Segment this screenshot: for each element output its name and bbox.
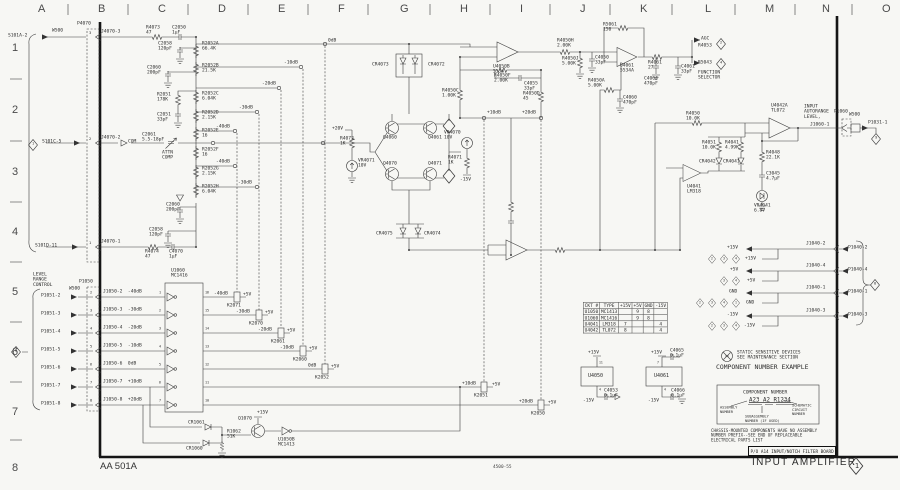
k2050-5v: +5V (548, 400, 556, 405)
grid-col-B: B (98, 3, 105, 15)
p1051-3: P1051-3 (41, 311, 60, 316)
minus15v-bridge: -15V (460, 177, 471, 182)
p1040-1: P1040-1 (848, 289, 867, 294)
pwr-d3b: 3 (723, 279, 725, 283)
grid-col-J: J (580, 3, 586, 15)
attn-comp: ATTN COMP (162, 150, 173, 160)
grid-col-G: G (400, 3, 409, 15)
p1051-4: P1051-4 (41, 329, 60, 334)
j1050-pin7: 7 (90, 381, 92, 385)
r5061: R5061 150 (603, 22, 617, 32)
r4050f: R4050F 2.00K (494, 73, 511, 83)
power-table-cell: 4 (654, 327, 668, 333)
minus15v-rail2: -15V (744, 323, 755, 328)
k2060: K2060 (293, 357, 307, 362)
k2050-db: +20dB (519, 399, 533, 404)
input-autorange-level: INPUT AUTORANGE LEVEL, (804, 104, 829, 119)
u4061: U4061 5534A (620, 63, 634, 73)
sheet-title: INPUT AMPLIFIER (752, 457, 856, 468)
u4050-pwr-pin11: 11 (599, 361, 603, 365)
c4066: C4066 0.1μF (671, 388, 685, 398)
j4070-pin3: 3 (89, 31, 91, 35)
k2051-db: +10dB (462, 381, 476, 386)
power-table-cell: 8 (619, 327, 633, 333)
pwr-d2a: 2 (711, 257, 713, 261)
plus20v: +20V (332, 126, 343, 131)
r4050a: R4050A 5.00K (588, 78, 605, 88)
q4061: Q4061 (428, 135, 442, 140)
j1050-pin4: 4 (90, 327, 92, 331)
u1050b: U1050B MC1413 (278, 437, 295, 447)
j1040-4: J1040-4 (806, 263, 825, 268)
p1051-7: P1051-7 (41, 383, 60, 388)
drawing-number: 4500-55 (493, 464, 512, 469)
r2051: R2051 178K (157, 92, 171, 102)
r2052d: R2052D 2.15K (202, 110, 219, 120)
vr4041: VR4041 6.8V (754, 203, 771, 213)
r2052h: R2052H 6.04K (202, 184, 219, 194)
k2070-5v: +5V (265, 310, 273, 315)
p1031-1: P1031-1 (868, 120, 887, 125)
level-range-control: LEVEL RANGE CONTROL (33, 272, 52, 287)
tap-minus10db: -10dB (284, 60, 298, 65)
j1050-5: J1050-5 -10dB (103, 343, 142, 348)
power-table-cell: U4041 (583, 321, 599, 327)
j1050-7: J1050-7 +10dB (103, 379, 142, 384)
grid-row-1: 1 (12, 42, 18, 54)
r2052a: R2052A 66.4K (202, 41, 219, 51)
pwr-d2d: 2 (711, 324, 713, 328)
grid-col-A: A (38, 3, 45, 15)
r4041: R4041 4.99K (725, 140, 739, 150)
grid-col-E: E (278, 3, 285, 15)
plus15v-rail2: +15V (745, 256, 756, 261)
tap-minus20db: -20dB (262, 81, 276, 86)
r4050j: R4050J 5.00K (562, 56, 579, 66)
j1050-2: J1050-2 -40dB (103, 289, 142, 294)
u4061-pwr-pin4: 4 (664, 388, 666, 392)
c2058: C2058 120pF (158, 41, 172, 51)
c4070: C4070 1μF (169, 249, 183, 259)
static-sensitive-icon (722, 351, 733, 362)
w500-level: W500 (69, 286, 80, 291)
grid-col-M: M (765, 3, 774, 15)
grid-row-5: 5 (12, 286, 18, 298)
k2071-5v: +5V (243, 292, 251, 297)
u1060-in4: 4 (159, 345, 161, 349)
c4065: C4065 0.1μF (670, 348, 684, 358)
power-table-cell: LM318 (600, 321, 619, 327)
r4074: R4074 47 (145, 249, 159, 259)
u4061-pwr-pin7: 7 (657, 361, 659, 365)
grid-col-F: F (338, 3, 345, 15)
j4070-2: J4070-2 (101, 135, 120, 140)
j1050-3: J1050-3 -30dB (103, 307, 142, 312)
c4053: C4053 0.1μF (604, 388, 618, 398)
k2061-5v: +5V (287, 328, 295, 333)
board-label-box: P/O A14 INPUT/NOTCH FILTER BOARD (748, 446, 836, 456)
u4041: U4041 LM318 (687, 184, 701, 194)
component-number-sample: A23 A2 R1234 (749, 397, 791, 403)
ref-diamond-9: 9 (875, 136, 877, 140)
r2052g: R2052G 2.15K (202, 166, 219, 176)
k2052: K2052 (315, 375, 329, 380)
p1051-5: P1051-5 (41, 347, 60, 352)
u1060-out14: 14 (205, 327, 209, 331)
u1060-out12: 12 (205, 363, 209, 367)
s101d-11: S101D-11 (35, 243, 57, 248)
j1050-6: J1050-6 0dB (103, 361, 136, 366)
c2058-b: C2058 120pF (149, 227, 163, 237)
junction-dots (195, 36, 799, 436)
p1040-2: P1040-2 (848, 245, 867, 250)
power-table-cell: U1050 (583, 308, 599, 314)
ref-diamond-8: 8 (874, 282, 876, 286)
c4060: C4060 470pF (623, 95, 637, 105)
u1060-out13: 13 (205, 345, 209, 349)
c4050: C4050 33pF (595, 55, 609, 65)
u1060-in1: 1 (159, 291, 161, 295)
grid-col-O: O (882, 3, 891, 15)
p4070: P4070 (77, 21, 91, 26)
k2071-db: -40dB (214, 291, 228, 296)
k2061: K2061 (271, 339, 285, 344)
power-table-cell (632, 327, 643, 333)
q4070: Q4070 (383, 161, 397, 166)
power-table-header: +15V (619, 302, 633, 308)
r4050d: R4050D 45 (523, 91, 540, 101)
j4070-1: J4070-1 (101, 239, 120, 244)
grid-row-3: 3 (12, 166, 18, 178)
k2060-db: -10dB (280, 345, 294, 350)
power-table-cell: MC1416 (600, 315, 619, 321)
cr4075: CR4075 (376, 231, 393, 236)
j4070-pin2: 2 (89, 137, 91, 141)
r4050: R4050 10.0K (686, 111, 700, 121)
tap-0db: 0dB (328, 38, 336, 43)
r4048: R4048 22.1K (766, 150, 780, 160)
pwr-d4a: 4 (735, 257, 737, 261)
pwr-d4c: 4 (723, 301, 725, 305)
j1050-4: J1050-4 -20dB (103, 325, 142, 330)
j1050-pin8: 8 (90, 399, 92, 403)
u4050-pwr-m15v: -15V (583, 398, 594, 403)
u1060-in7: 7 (159, 399, 161, 403)
gnd-rail2: GND (746, 300, 754, 305)
plus10db-node: +10dB (487, 110, 501, 115)
power-table-cell: U4042 (583, 327, 599, 333)
assembly-number: ASSEMBLY NUMBER (720, 406, 737, 414)
u4050-pwr: U4050 (588, 373, 603, 379)
tap-minus30db-b: -30dB (238, 180, 252, 185)
r2052e: R2052E 16 (202, 128, 219, 138)
j1040-1: J1040-1 (806, 285, 825, 290)
j1050-pin5: 5 (90, 345, 92, 349)
grid-col-N: N (822, 3, 830, 15)
pwr-d3d: 3 (723, 324, 725, 328)
pwr-d3c: 3 (711, 301, 713, 305)
power-table-cell: TL072 (600, 327, 619, 333)
minus15v-rail: -15V (727, 312, 738, 317)
c4061: C4061 33pF (681, 64, 695, 74)
p1060: P1060 (834, 109, 848, 114)
plus20db-node: +20dB (522, 110, 536, 115)
power-table-header: CKT # (583, 302, 599, 308)
p1051-2: P1051-2 (41, 293, 60, 298)
cr4074: CR4074 (424, 231, 441, 236)
u1060-out10: 10 (205, 399, 209, 403)
r4072: R4072 1K (340, 136, 354, 146)
k2061-db: -20dB (258, 327, 272, 332)
board-label: P/O A14 INPUT/NOTCH FILTER BOARD (750, 449, 833, 454)
plus15v-rail: +15V (727, 245, 738, 250)
cr4073: CR4073 (372, 62, 389, 67)
power-table-header: +5V (632, 302, 643, 308)
pwr-d3a: 3 (723, 257, 725, 261)
k2060-5v: +5V (309, 346, 317, 351)
plus15v-q1070: +15V (257, 410, 268, 415)
power-table-header: -15V (654, 302, 668, 308)
cr1060: CR1060 (186, 446, 203, 451)
p1040-4: P1040-4 (848, 267, 867, 272)
u1060-out16: 16 (205, 291, 209, 295)
product-title: AA 501A (100, 461, 137, 472)
chassis-note: CHASSIS-MOUNTED COMPONENTS HAVE NO ASSEM… (711, 429, 817, 443)
schematic-sheet: ABCDEFGHIJKLMNO12345678 S101A-2W500P4070… (0, 0, 900, 490)
r2052c: R2052C 6.04K (202, 91, 219, 101)
q4071: Q4071 (428, 161, 442, 166)
schematic-circuit-number: SCHEMATIC CIRCUIT NUMBER (792, 404, 812, 416)
p1051-6: P1051-6 (41, 365, 60, 370)
r4073: R4073 47 (146, 25, 160, 35)
pwr-d1c: 1 (735, 301, 737, 305)
r5043: R5043 (698, 60, 712, 65)
tap-minus40db-b: -40dB (216, 159, 230, 164)
com: COM (128, 139, 136, 144)
plus5v-rail2: +5V (747, 278, 755, 283)
r4051: R4051 10.0K (702, 140, 716, 150)
k2051-5v: +5V (492, 382, 500, 387)
p1050: P1050 (79, 279, 93, 284)
grid-row-8: 8 (12, 462, 18, 474)
r1062: R1062 51K (227, 429, 241, 439)
function-selector: FUNCTION SELECTOR (698, 70, 720, 80)
s101c-5: S101C-5 (42, 139, 61, 144)
u4050-pwr-pin4: 4 (599, 388, 601, 392)
vr4071: VR4071 10V (358, 158, 375, 168)
cr1061: CR1061 (188, 420, 205, 425)
grid-col-C: C (158, 3, 166, 15)
r2052f: R2052F 16 (202, 147, 219, 157)
r4050c: R4050C 1.00K (442, 88, 459, 98)
grid-col-L: L (705, 3, 711, 15)
grid-ticks (10, 4, 852, 440)
p1040-3: P1040-3 (848, 312, 867, 317)
grid-col-D: D (218, 3, 226, 15)
s101a-2: S101A-2 (8, 33, 27, 38)
static-note: STATIC SENSITIVE DEVICES SEE MAINTENANCE… (737, 350, 801, 360)
u4042a: U4042A TL072 (771, 103, 788, 113)
u1060-in2: 2 (159, 309, 161, 313)
component-number-heading: COMPONENT NUMBER (743, 390, 787, 395)
j1050-pin3: 3 (90, 309, 92, 313)
u4061-pwr-15v: +15V (651, 350, 662, 355)
grid-row-7: 7 (12, 406, 18, 418)
j4070-pin1: 1 (89, 241, 91, 245)
k2051: K2051 (474, 393, 488, 398)
tap-minus30db: -30dB (239, 105, 253, 110)
r2052b: R2052B 21.5K (202, 63, 219, 73)
q4060: Q4060 (383, 135, 397, 140)
j1040-2: J1040-2 (806, 241, 825, 246)
u1060-out11: 11 (205, 381, 209, 385)
u4050-pwr-15v: +15V (588, 350, 599, 355)
ref-diamond-1: 1 (32, 142, 34, 146)
tap-minus40db: -40dB (216, 124, 230, 129)
grid-col-I: I (520, 3, 523, 15)
power-table-cell (643, 327, 654, 333)
c2051: C2051 33pF (157, 112, 171, 122)
r4053: R4053 (698, 43, 712, 48)
gnd-rail: GND (729, 289, 737, 294)
j1060-1: J1060-1 (810, 122, 829, 127)
j1050-8: J1050-8 +20dB (103, 397, 142, 402)
grid-col-K: K (640, 3, 647, 15)
pwr-d4d: 4 (735, 324, 737, 328)
u1060-out15: 15 (205, 309, 209, 313)
r4061: R4061 27 (648, 60, 662, 70)
cr4072: CR4072 (428, 62, 445, 67)
pwr-d2c: 2 (699, 301, 701, 305)
j4070-3: J4070-3 (101, 29, 120, 34)
w500-out: W500 (849, 112, 860, 117)
p1051-8: P1051-8 (41, 401, 60, 406)
u1060-in6: 6 (159, 381, 161, 385)
ic-power-table: CKT #TYPE+15V+5VGND-15VU1050MC141398U106… (583, 302, 683, 340)
c3045: C3045 4.7μF (766, 171, 780, 181)
component-number-example-title: COMPONENT NUMBER EXAMPLE (716, 364, 808, 371)
j1050-pin2: 2 (90, 291, 92, 295)
j1040-3: J1040-3 (806, 308, 825, 313)
power-table-row: U4042TL07284 (583, 327, 667, 333)
k2070: K2070 (249, 321, 263, 326)
k2071: K2071 (227, 303, 241, 308)
c2060-b: C2060 200pF (166, 202, 180, 212)
subassembly-number: SUBASSEMBLY NUMBER (IF USED) (745, 415, 780, 423)
u1060-in5: 5 (159, 363, 161, 367)
grid-col-H: H (460, 3, 468, 15)
u4061-pwr: U4061 (654, 373, 669, 379)
c4064: C4064 470pF (644, 76, 658, 86)
r4050h: R4050H 2.00K (557, 38, 574, 48)
u4061-pwr-m15v: -15V (648, 398, 659, 403)
sheet-number: 1 (853, 462, 861, 470)
c2060: C2060 200pF (147, 65, 161, 75)
plus5v-rail: +5V (730, 267, 738, 272)
r4071: R4071 1K (448, 155, 462, 165)
grid-row-4: 4 (12, 226, 18, 238)
u1060-in3: 3 (159, 327, 161, 331)
cr4042: CR4042 (699, 159, 716, 164)
ref-diamond-4: 4 (720, 61, 722, 65)
w500-top: W500 (52, 28, 63, 33)
j1050-pin6: 6 (90, 363, 92, 367)
grid-row-2: 2 (12, 104, 18, 116)
power-table-cell: U1060 (583, 315, 599, 321)
k2052-5v: +5V (331, 364, 339, 369)
c2061: C2061 5.5-18pF (142, 132, 164, 142)
ref-diamond-2: 2 (720, 41, 722, 45)
cr4041: CR4041 (723, 159, 740, 164)
c2050: C2050 1μF (172, 25, 186, 35)
agc: AGC (701, 36, 709, 41)
pwr-d4b: 4 (735, 279, 737, 283)
k2052-db: 0dB (308, 363, 316, 368)
ref-diamond-6: 6 (15, 349, 17, 353)
k2050: K2050 (531, 411, 545, 416)
vr4070: VR4070 10V (444, 130, 461, 140)
q1070: Q1070 (238, 416, 252, 421)
k2070-db: -30dB (236, 309, 250, 314)
u1060: U1060 MC1416 (171, 268, 188, 278)
power-table-cell: MC1413 (600, 308, 619, 314)
power-table-header: GND (643, 302, 654, 308)
